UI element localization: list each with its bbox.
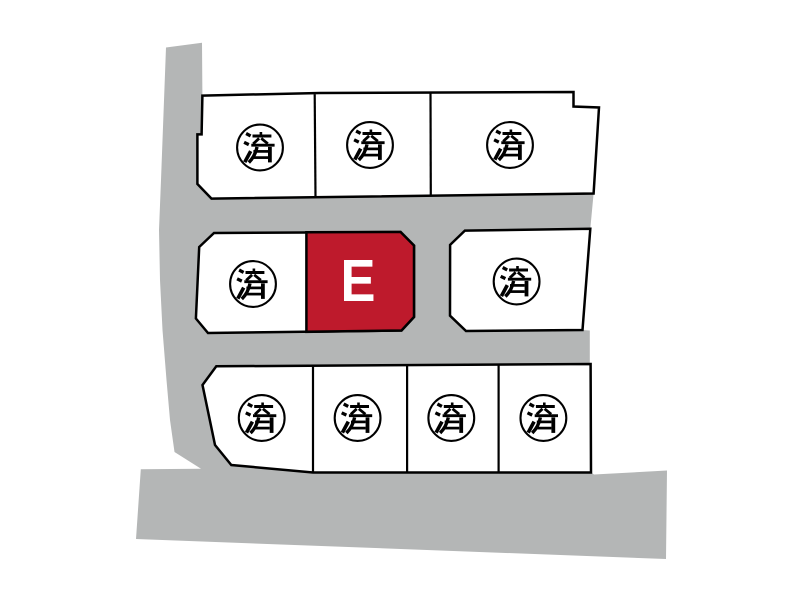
svg-text:E: E <box>341 248 376 314</box>
